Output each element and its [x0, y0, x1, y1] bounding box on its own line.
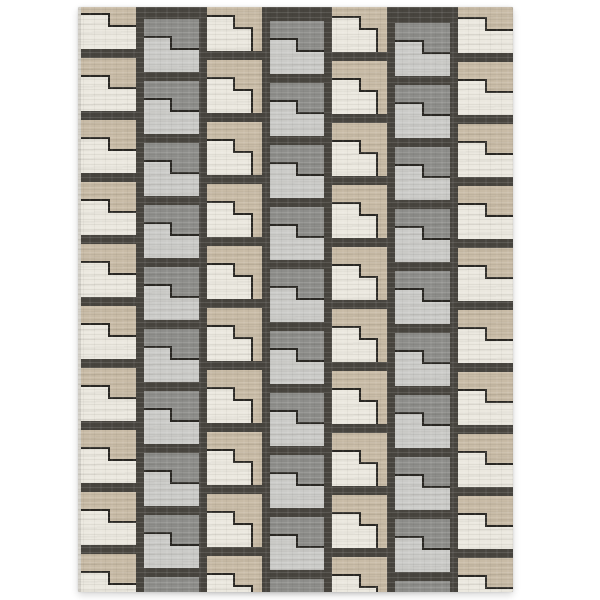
step-motif-tab [395, 412, 424, 426]
step-motif-tab [270, 162, 299, 176]
step-motif-body [395, 550, 450, 572]
step-motif-body [207, 215, 253, 237]
rug-selvedge-edge [78, 7, 81, 592]
step-motif-tab [458, 575, 487, 589]
step-motif-tab [144, 222, 173, 236]
step-motif-tab [207, 263, 236, 277]
rug-column-7 [458, 7, 513, 592]
rug-column-2 [144, 7, 199, 592]
step-motif-body [332, 464, 378, 486]
step-motif-body [207, 587, 253, 592]
step-motif-tab [395, 536, 424, 550]
step-motif-body [332, 154, 378, 176]
step-motif-body [458, 527, 513, 549]
step-motif-body [207, 277, 253, 299]
rug-column-1 [81, 7, 136, 592]
step-motif-tab [332, 202, 361, 216]
step-motif-tab [81, 199, 110, 213]
step-motif-tab [81, 571, 110, 585]
step-motif-tab [458, 17, 487, 31]
step-motif-body [270, 300, 325, 322]
rug [78, 7, 513, 592]
step-motif-tab [207, 139, 236, 153]
step-motif-body [207, 339, 253, 361]
step-motif-tab [270, 348, 299, 362]
step-motif-tab [81, 385, 110, 399]
step-motif-body [395, 426, 450, 448]
step-motif-body [395, 240, 450, 262]
step-motif-body [144, 50, 199, 72]
step-motif-body [395, 302, 450, 324]
step-motif-tab [395, 40, 424, 54]
step-motif-body [395, 54, 450, 76]
step-motif-body [332, 526, 378, 548]
step-motif-tab [81, 137, 110, 151]
step-motif-tab [207, 449, 236, 463]
rug-column-4 [270, 7, 325, 592]
rug-cell [144, 577, 199, 592]
step-motif-body [144, 484, 199, 506]
step-motif-tab [270, 534, 299, 548]
step-motif-tab [458, 513, 487, 527]
step-motif-body [270, 486, 325, 508]
step-motif-tab [81, 323, 110, 337]
step-motif-tab [207, 15, 236, 29]
step-motif-body [81, 399, 136, 421]
step-motif-tab [332, 450, 361, 464]
step-motif-body [270, 362, 325, 384]
step-motif-body [144, 298, 199, 320]
step-motif-body [332, 216, 378, 238]
rug-cell [395, 581, 450, 592]
step-motif-body [270, 238, 325, 260]
step-motif-body [81, 461, 136, 483]
step-motif-tab [270, 286, 299, 300]
step-motif-tab [395, 350, 424, 364]
step-motif-body [81, 337, 136, 359]
step-motif-tab [81, 447, 110, 461]
step-motif-body [395, 488, 450, 510]
step-motif-body [81, 275, 136, 297]
step-motif-tab [332, 512, 361, 526]
step-motif-tab [270, 224, 299, 238]
rug-column-5 [332, 7, 387, 592]
step-motif-body [332, 92, 378, 114]
step-motif-tab [458, 141, 487, 155]
step-motif-tab [332, 326, 361, 340]
step-motif-tab [270, 410, 299, 424]
step-motif-tab [395, 474, 424, 488]
step-motif-tab [332, 16, 361, 30]
step-motif-body [144, 422, 199, 444]
step-motif-tab [144, 36, 173, 50]
step-motif-tab [332, 388, 361, 402]
step-motif-body [81, 213, 136, 235]
product-photo [0, 0, 600, 600]
step-motif-body [81, 27, 136, 49]
step-motif-tab [144, 470, 173, 484]
step-motif-tab [207, 387, 236, 401]
step-motif-body [207, 401, 253, 423]
step-motif-body [207, 29, 253, 51]
step-motif-tab [144, 98, 173, 112]
step-motif-body [81, 523, 136, 545]
step-motif-body [332, 588, 378, 592]
step-motif-body [458, 279, 513, 301]
rug-cell [270, 579, 325, 592]
step-motif-tab [81, 13, 110, 27]
step-motif-body [458, 465, 513, 487]
step-motif-body [332, 278, 378, 300]
step-motif-tab [332, 264, 361, 278]
step-motif-tab [458, 389, 487, 403]
step-motif-body [395, 116, 450, 138]
step-motif-tab [458, 203, 487, 217]
step-motif-body [332, 340, 378, 362]
step-motif-tab [207, 511, 236, 525]
step-motif-body [395, 364, 450, 386]
step-motif-body [458, 93, 513, 115]
step-motif-tab [332, 140, 361, 154]
step-motif-tab [207, 573, 236, 587]
step-motif-body [395, 178, 450, 200]
step-motif-tab [207, 325, 236, 339]
step-motif-tab [270, 100, 299, 114]
step-motif-tab [81, 509, 110, 523]
step-motif-tab [144, 408, 173, 422]
step-motif-body [458, 403, 513, 425]
step-motif-body [144, 112, 199, 134]
step-motif-tab [144, 284, 173, 298]
step-motif-tab [458, 327, 487, 341]
step-motif-tab [458, 79, 487, 93]
step-motif-body [81, 89, 136, 111]
step-motif-tab [144, 532, 173, 546]
step-motif-tab [270, 38, 299, 52]
step-motif-body [144, 174, 199, 196]
step-motif-tab [81, 75, 110, 89]
step-motif-body [458, 155, 513, 177]
step-motif-body [207, 153, 253, 175]
step-motif-tab [81, 261, 110, 275]
step-motif-tab [395, 226, 424, 240]
step-motif-body [270, 424, 325, 446]
step-motif-body [81, 151, 136, 173]
step-motif-tab [144, 160, 173, 174]
step-motif-body [144, 236, 199, 258]
step-motif-tab [395, 164, 424, 178]
step-motif-body [207, 525, 253, 547]
step-motif-body [207, 91, 253, 113]
step-motif-tab [207, 77, 236, 91]
step-motif-body [458, 589, 513, 592]
step-motif-tab [458, 451, 487, 465]
step-motif-body [332, 30, 378, 52]
rug-column-3 [207, 7, 262, 592]
step-motif-tab [332, 78, 361, 92]
step-motif-body [207, 463, 253, 485]
rug-column-6 [395, 7, 450, 592]
step-motif-body [458, 217, 513, 239]
step-motif-body [458, 31, 513, 53]
step-motif-body [458, 341, 513, 363]
step-motif-body [270, 114, 325, 136]
step-motif-body [270, 176, 325, 198]
step-motif-body [332, 402, 378, 424]
step-motif-tab [207, 201, 236, 215]
step-motif-tab [395, 102, 424, 116]
step-motif-tab [144, 346, 173, 360]
step-motif-body [270, 52, 325, 74]
step-motif-tab [332, 574, 361, 588]
step-motif-tab [458, 265, 487, 279]
step-motif-body [144, 360, 199, 382]
step-motif-body [270, 548, 325, 570]
step-motif-body [144, 546, 199, 568]
step-motif-tab [270, 472, 299, 486]
step-motif-body [81, 585, 136, 592]
step-motif-tab [395, 288, 424, 302]
